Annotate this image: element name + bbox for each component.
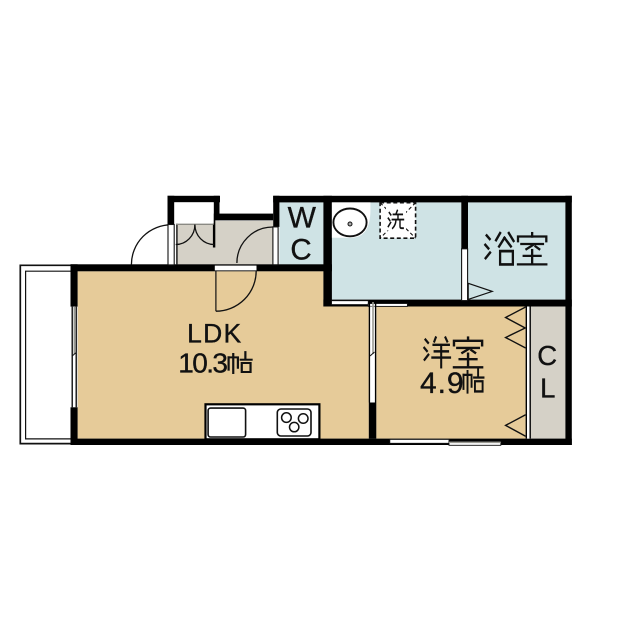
svg-text:4.9: 4.9 [420, 367, 464, 400]
svg-text:LDK: LDK [187, 318, 241, 348]
svg-text:10.3: 10.3 [178, 347, 228, 378]
svg-text:C: C [537, 340, 557, 371]
svg-text:W: W [288, 202, 317, 235]
svg-text:L: L [540, 372, 555, 403]
svg-text:C: C [290, 233, 311, 266]
